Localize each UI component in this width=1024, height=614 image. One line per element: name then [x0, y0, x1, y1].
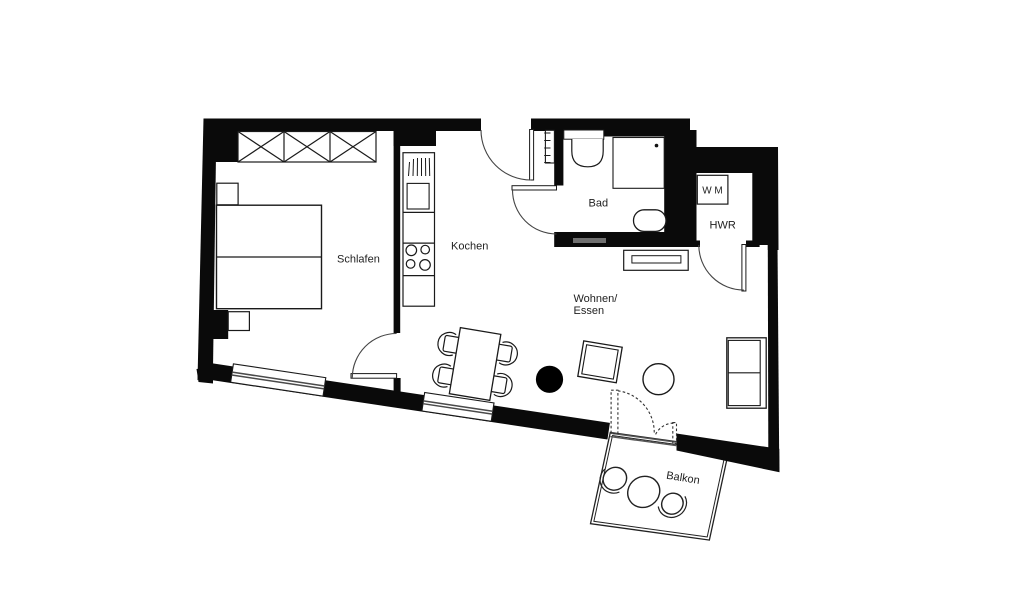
svg-text:Schlafen: Schlafen: [337, 254, 380, 266]
svg-text:Wohnen/: Wohnen/: [574, 293, 619, 305]
svg-text:Kochen: Kochen: [451, 241, 488, 253]
svg-text:HWR: HWR: [710, 220, 736, 232]
svg-text:Bad: Bad: [589, 198, 609, 210]
svg-text:W M: W M: [702, 186, 723, 197]
svg-text:Essen: Essen: [574, 305, 605, 317]
